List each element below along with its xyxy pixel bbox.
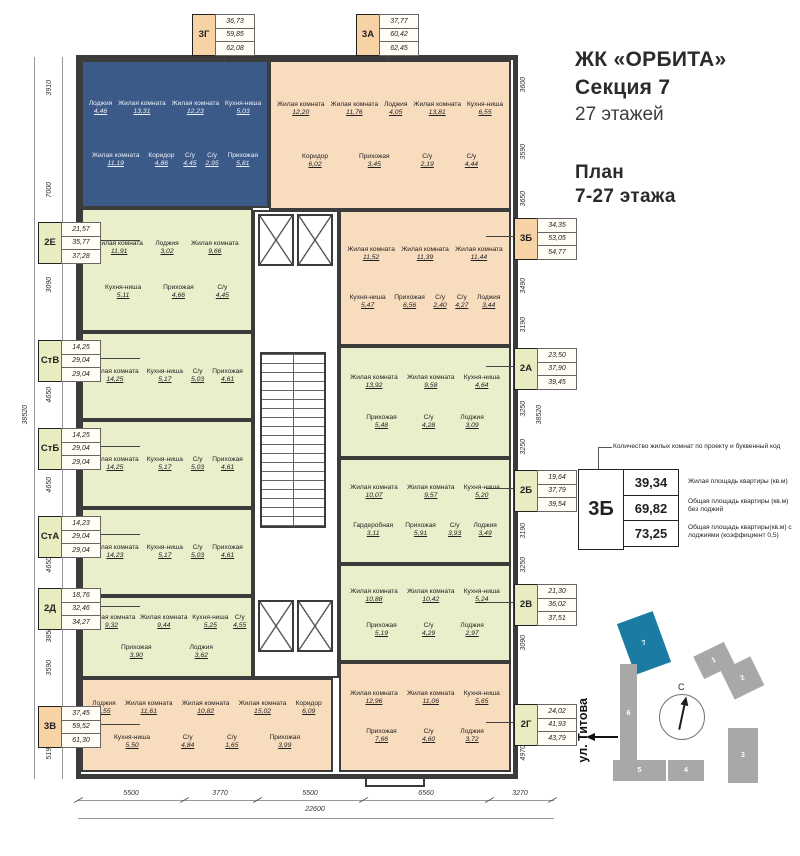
- room-label: С/у: [217, 285, 227, 292]
- dimension-line: [62, 57, 63, 779]
- room: Кухня-ниша4,64: [464, 375, 500, 389]
- room-label: Прихожая: [269, 735, 300, 742]
- tag-2d: 2Д18,7632,4634,27: [38, 588, 101, 630]
- room: Кухня-ниша5,25: [192, 615, 228, 629]
- room-area: 3,09: [465, 422, 478, 429]
- tag-3b: 3Б34,3553,0554,77: [514, 218, 577, 260]
- room-area: 9,66: [208, 248, 221, 255]
- building-number: 7: [641, 639, 647, 647]
- building-number: 5: [638, 767, 642, 774]
- area-total-loggia: 39,45: [537, 375, 577, 390]
- room-label: Коридор: [148, 153, 174, 160]
- room-label: Жилая комната: [118, 101, 166, 108]
- tag-leader: [486, 722, 514, 723]
- room: Кухня-ниша5,17: [147, 369, 183, 383]
- room-area: 4,55: [233, 622, 246, 629]
- area-total-loggia: 37,28: [61, 249, 101, 264]
- dim-left-5: 4650: [46, 557, 53, 573]
- room: С/у3,93: [448, 523, 461, 537]
- room-area: 6,02: [308, 161, 321, 168]
- apartment-code: 3В: [38, 706, 62, 748]
- apartment-3v: Лоджия3,55 Жилая комната11,61 Жилая комн…: [81, 678, 333, 772]
- tag-2v: 2В21,3036,0237,51: [514, 584, 577, 626]
- room: Жилая комната13,31: [118, 101, 166, 115]
- room-label: Лоджия: [460, 415, 483, 422]
- building-core: [253, 210, 339, 678]
- area-living: 18,76: [61, 588, 101, 603]
- room: Лоджия4,05: [384, 102, 407, 116]
- area-total-loggia: 37,51: [537, 611, 577, 626]
- room-area: 11,52: [363, 254, 380, 261]
- room-label: Кухня-ниша: [464, 589, 500, 596]
- area-living: 21,57: [61, 222, 101, 237]
- tag-leader: [486, 488, 514, 489]
- building-number: 3: [741, 752, 745, 759]
- street-label: ул. Титова: [576, 698, 590, 763]
- room-label: Лоджия: [155, 241, 178, 248]
- room-area: 4,61: [221, 376, 234, 383]
- dim-right-7: 3190: [520, 523, 527, 539]
- room-label: Жилая комната: [347, 247, 395, 254]
- area-living: 36,73: [215, 14, 255, 29]
- room: Жилая комната15,02: [239, 701, 287, 715]
- room-area: 4,86: [155, 160, 168, 167]
- apartment-code: СтБ: [38, 428, 62, 470]
- room-area: 4,61: [221, 464, 234, 471]
- apartment-code: 2В: [514, 584, 538, 626]
- room: Жилая комната10,07: [350, 485, 398, 499]
- room-label: Кухня-ниша: [225, 101, 261, 108]
- room-area: 4,60: [422, 736, 435, 743]
- apartment-3g: Лоджия4,46 Жилая комната13,31 Жилая комн…: [81, 60, 269, 208]
- room-label: Прихожая: [366, 623, 397, 630]
- room-label: Лоджия: [384, 102, 407, 109]
- dim-left-7: 3590: [46, 660, 53, 676]
- room-label: С/у: [193, 457, 203, 464]
- area-total-loggia: 29,04: [61, 455, 101, 470]
- room: Прихожая4,61: [212, 545, 243, 559]
- room: Жилая комната10,88: [350, 589, 398, 603]
- tag-leader: [100, 446, 140, 447]
- room: С/у1,65: [225, 735, 238, 749]
- room-label: Лоджия: [460, 729, 483, 736]
- room-area: 13,81: [429, 109, 446, 116]
- room: Кухня-ниша5,47: [350, 295, 386, 309]
- room-area: 9,44: [157, 622, 170, 629]
- area-living: 34,35: [537, 218, 577, 233]
- dim-left-0: 3910: [46, 80, 53, 96]
- legend-desc-total-loggia: Общая площадь квартиры(кв.м) с лоджиями …: [688, 524, 796, 540]
- building-number: 4: [684, 767, 688, 774]
- room-label: Жилая комната: [277, 102, 325, 109]
- dim-bottom-2: 5500: [302, 790, 318, 797]
- room-label: С/у: [185, 153, 195, 160]
- room-area: 5,65: [475, 698, 488, 705]
- dim-left-2: 3090: [46, 277, 53, 293]
- room: Прихожая4,61: [212, 457, 243, 471]
- entrance-porch: [365, 774, 425, 787]
- room-label: С/у: [183, 735, 193, 742]
- room-area: 5,17: [158, 464, 171, 471]
- room-area: 10,88: [365, 596, 382, 603]
- room: Жилая комната11,61: [125, 701, 173, 715]
- tag-leader: [486, 602, 514, 603]
- room-label: Кухня-ниша: [147, 369, 183, 376]
- room: Коридор4,86: [148, 153, 174, 167]
- room-area: 5,47: [361, 302, 374, 309]
- room-area: 12,23: [187, 108, 204, 115]
- north-arrow-icon: [678, 703, 686, 730]
- room-area: 13,92: [365, 382, 382, 389]
- room-area: 5,17: [158, 376, 171, 383]
- area-total-loggia: 39,54: [537, 497, 577, 512]
- room: Лоджия3,72: [460, 729, 483, 743]
- room: Жилая комната10,42: [407, 589, 455, 603]
- room: Кухня-ниша5,65: [464, 691, 500, 705]
- room-label: Кухня-ниша: [147, 457, 183, 464]
- area-total: 35,77: [61, 236, 101, 251]
- legend-desc-living: Жилая площадь квартиры (кв.м): [688, 478, 796, 486]
- area-living: 24,02: [537, 704, 577, 719]
- room-area: 4,64: [475, 382, 488, 389]
- room: Прихожая3,90: [121, 645, 152, 659]
- room-label: Жилая комната: [95, 241, 143, 248]
- room-label: Жилая комната: [407, 589, 455, 596]
- room-area: 9,58: [424, 382, 437, 389]
- site-building-5: 5: [613, 760, 666, 781]
- room: Прихожая5,19: [366, 623, 397, 637]
- room: Кухня-ниша5,17: [147, 545, 183, 559]
- apartment-2g: Жилая комната12,96 Жилая комната11,06 Ку…: [339, 662, 511, 772]
- room: Лоджия3,09: [460, 415, 483, 429]
- room-label: Гардеробная: [353, 523, 393, 530]
- area-total: 59,85: [215, 28, 255, 43]
- room: С/у4,45: [216, 285, 229, 299]
- legend-callout-line: [598, 447, 612, 470]
- apartment-2e: Жилая комната11,91 Лоджия3,02 Жилая комн…: [81, 208, 253, 332]
- room-label: Прихожая: [212, 369, 243, 376]
- room-area: 11,91: [111, 248, 128, 255]
- room: Прихожая5,48: [366, 415, 397, 429]
- room: Жилая комната9,66: [191, 241, 239, 255]
- room-area: 1,65: [225, 742, 238, 749]
- room-label: Кухня-ниша: [464, 375, 500, 382]
- dim-bottom-total: 22600: [305, 806, 324, 813]
- room: С/у4,28: [422, 415, 435, 429]
- room-area: 3,49: [479, 530, 492, 537]
- building-number: 2: [739, 674, 746, 682]
- room-area: 14,25: [106, 376, 123, 383]
- room: Кухня-ниша5,24: [464, 589, 500, 603]
- room-area: 4,44: [465, 161, 478, 168]
- room-label: Жилая комната: [407, 485, 455, 492]
- room: С/у5,03: [191, 369, 204, 383]
- room: Жилая комната12,96: [350, 691, 398, 705]
- apartment-code: 3А: [356, 14, 380, 56]
- room-label: Лоджия: [473, 523, 496, 530]
- compass: С: [659, 694, 705, 740]
- room-label: Жилая комната: [350, 589, 398, 596]
- room-area: 4,61: [221, 552, 234, 559]
- room-label: Жилая комната: [172, 101, 220, 108]
- dim-bottom-4: 3270: [512, 790, 528, 797]
- area-living: 14,25: [61, 340, 101, 355]
- area-total-loggia: 61,30: [61, 733, 101, 748]
- dim-right-3: 3490: [520, 278, 527, 294]
- section-title: Секция 7: [575, 76, 670, 100]
- room-label: Кухня-ниша: [192, 615, 228, 622]
- room-label: Жилая комната: [350, 485, 398, 492]
- room-label: С/у: [435, 295, 445, 302]
- room: Жилая комната13,81: [413, 102, 461, 116]
- room-area: 3,72: [465, 736, 478, 743]
- room-area: 4,05: [389, 109, 402, 116]
- room-label: С/у: [207, 153, 217, 160]
- dim-right-5: 3250: [520, 401, 527, 417]
- room-area: 6,56: [403, 302, 416, 309]
- north-label: С: [678, 682, 685, 692]
- room-label: Прихожая: [405, 523, 436, 530]
- room-label: Лоджия: [190, 645, 213, 652]
- room-label: С/у: [422, 154, 432, 161]
- room-label: Прихожая: [394, 295, 425, 302]
- room-label: С/у: [193, 545, 203, 552]
- room-label: Жилая комната: [239, 701, 287, 708]
- room-area: 11,06: [422, 698, 439, 705]
- site-building-4: 4: [668, 760, 704, 781]
- room: Кухня-ниша6,55: [467, 102, 503, 116]
- apartment-code: СтВ: [38, 340, 62, 382]
- legend-total-loggia-area: 73,25: [623, 520, 679, 547]
- area-total: 53,05: [537, 232, 577, 247]
- dim-right-8: 3250: [520, 557, 527, 573]
- room-area: 11,76: [346, 109, 363, 116]
- room-label: Кухня-ниша: [350, 295, 386, 302]
- room-area: 11,44: [471, 254, 488, 261]
- room-label: Прихожая: [359, 154, 390, 161]
- room: С/у4,29: [422, 623, 435, 637]
- room-label: С/у: [235, 615, 245, 622]
- apartment-code: 2Б: [514, 470, 538, 512]
- room: С/у4,84: [181, 735, 194, 749]
- tag-2a: 2А23,5037,9039,45: [514, 348, 577, 390]
- room-label: Кухня-ниша: [105, 285, 141, 292]
- room-label: Жилая комната: [182, 701, 230, 708]
- room: Кухня-ниша5,17: [147, 457, 183, 471]
- dim-left-4: 4650: [46, 477, 53, 493]
- room-area: 11,19: [107, 160, 124, 167]
- site-building-3: 3: [728, 728, 758, 783]
- area-total: 32,46: [61, 602, 101, 617]
- room: Прихожая7,66: [366, 729, 397, 743]
- room: Лоджия3,62: [190, 645, 213, 659]
- room-area: 5,03: [191, 464, 204, 471]
- room-area: 6,55: [478, 109, 491, 116]
- room-area: 10,07: [365, 492, 382, 499]
- room: Кухня-ниша5,50: [114, 735, 150, 749]
- apartment-code: 2Д: [38, 588, 62, 630]
- room-area: 2,97: [465, 630, 478, 637]
- room: Прихожая5,91: [405, 523, 436, 537]
- apartment-code: 2А: [514, 348, 538, 390]
- room-label: Коридор: [302, 154, 328, 161]
- tag-3v: 3В37,4559,5261,30: [38, 706, 101, 748]
- room: С/у4,45: [183, 153, 196, 167]
- room-label: Жилая комната: [407, 375, 455, 382]
- dim-right-10: 4970: [520, 745, 527, 761]
- legend-callout: Количество жилых комнат по проекту и бук…: [613, 443, 791, 450]
- room-label: Жилая комната: [125, 701, 173, 708]
- room-label: Кухня-ниша: [147, 545, 183, 552]
- area-living: 14,23: [61, 516, 101, 531]
- room-area: 3,62: [195, 652, 208, 659]
- room: Лоджия3,02: [155, 241, 178, 255]
- room: Коридор6,09: [296, 701, 322, 715]
- room-area: 11,61: [140, 708, 157, 715]
- room-area: 2,95: [205, 160, 218, 167]
- room-label: Лоджия: [477, 295, 500, 302]
- room-area: 3,99: [278, 742, 291, 749]
- dim-right-1: 3590: [520, 144, 527, 160]
- floors-count: 27 этажей: [575, 104, 664, 126]
- room: С/у5,03: [191, 457, 204, 471]
- tag-leader: [486, 236, 514, 237]
- room: Жилая комната11,76: [331, 102, 379, 116]
- room-area: 10,82: [197, 708, 214, 715]
- room: С/у4,60: [422, 729, 435, 743]
- room-label: Прихожая: [121, 645, 152, 652]
- room: Кухня-ниша5,03: [225, 101, 261, 115]
- dim-right-0: 3600: [520, 77, 527, 93]
- room-area: 5,48: [375, 422, 388, 429]
- room: С/у2,19: [421, 154, 434, 168]
- room-area: 3,02: [160, 248, 173, 255]
- tag-leader: [486, 366, 514, 367]
- room-area: 4,46: [94, 108, 107, 115]
- area-total: 36,02: [537, 598, 577, 613]
- room: С/у4,55: [233, 615, 246, 629]
- area-living: 14,25: [61, 428, 101, 443]
- legend-code: 3Б: [578, 469, 624, 550]
- room-label: Коридор: [296, 701, 322, 708]
- room-label: Прихожая: [366, 729, 397, 736]
- room: С/у4,44: [465, 154, 478, 168]
- area-total: 41,93: [537, 718, 577, 733]
- room: Лоджия4,46: [89, 101, 112, 115]
- apartment-code: 3Б: [514, 218, 538, 260]
- room-area: 5,50: [125, 742, 138, 749]
- room: Жилая комната13,92: [350, 375, 398, 389]
- dim-left-1: 7000: [46, 182, 53, 198]
- tag-2e: 2Е21,5735,7737,28: [38, 222, 101, 264]
- room-area: 10,42: [422, 596, 439, 603]
- room-area: 5,03: [191, 376, 204, 383]
- dimension-line: [34, 57, 35, 779]
- room-area: 5,19: [375, 630, 388, 637]
- room-area: 5,81: [236, 160, 249, 167]
- area-total: 29,04: [61, 530, 101, 545]
- tag-2b: 2Б19,6437,7939,54: [514, 470, 577, 512]
- plan-label: План: [575, 162, 624, 184]
- area-total-loggia: 62,45: [379, 41, 419, 56]
- room-label: Жилая комната: [401, 247, 449, 254]
- room: Жилая комната9,44: [140, 615, 188, 629]
- room-area: 7,66: [375, 736, 388, 743]
- room: Кухня-ниша5,11: [105, 285, 141, 299]
- room-area: 4,84: [181, 742, 194, 749]
- dim-bottom-1: 3770: [212, 790, 228, 797]
- room-area: 4,66: [172, 292, 185, 299]
- tag-st-a: СтА14,2329,0429,04: [38, 516, 101, 558]
- room: Жилая комната11,44: [455, 247, 503, 261]
- area-total-loggia: 43,79: [537, 731, 577, 746]
- area-total-loggia: 54,77: [537, 245, 577, 260]
- room: Лоджия3,44: [477, 295, 500, 309]
- legend-living-area: 39,34: [623, 469, 679, 496]
- tag-st-b: СтБ14,2529,0429,04: [38, 428, 101, 470]
- room: Прихожая6,56: [394, 295, 425, 309]
- tag-st-v: СтВ14,2529,0429,04: [38, 340, 101, 382]
- area-total-loggia: 62,08: [215, 41, 255, 56]
- room-area: 3,44: [482, 302, 495, 309]
- room-area: 5,11: [117, 292, 130, 299]
- room-area: 4,29: [422, 630, 435, 637]
- room-area: 5,91: [414, 530, 427, 537]
- room-label: С/у: [227, 735, 237, 742]
- room: Жилая комната10,82: [182, 701, 230, 715]
- room-label: Жилая комната: [350, 375, 398, 382]
- dim-bottom-0: 5500: [123, 790, 139, 797]
- complex-title: ЖК «ОРБИТА»: [575, 48, 727, 72]
- room-area: 4,28: [422, 422, 435, 429]
- room-area: 14,25: [106, 464, 123, 471]
- tag-leader: [100, 606, 140, 607]
- dimension-line: [78, 800, 554, 801]
- room-label: Прихожая: [163, 285, 194, 292]
- tag-2g: 2Г24,0241,9343,79: [514, 704, 577, 746]
- area-total: 37,79: [537, 484, 577, 499]
- room-label: С/у: [457, 295, 467, 302]
- room-label: Жилая комната: [140, 615, 188, 622]
- room: Прихожая3,99: [269, 735, 300, 749]
- room-area: 2,40: [433, 302, 446, 309]
- room-area: 3,93: [448, 530, 461, 537]
- room: С/у2,40: [433, 295, 446, 309]
- room: Прихожая4,66: [163, 285, 194, 299]
- room-label: Жилая комната: [413, 102, 461, 109]
- room-area: 11,39: [417, 254, 434, 261]
- area-living: 19,64: [537, 470, 577, 485]
- room: Лоджия3,49: [473, 523, 496, 537]
- apartment-3b: Жилая комната11,52 Жилая комната11,39 Жи…: [339, 210, 511, 346]
- room-label: Жилая комната: [407, 691, 455, 698]
- room-label: Кухня-ниша: [464, 691, 500, 698]
- area-total-loggia: 29,04: [61, 367, 101, 382]
- room-area: 5,25: [204, 622, 217, 629]
- area-living: 23,50: [537, 348, 577, 363]
- room: Жилая комната11,39: [401, 247, 449, 261]
- room: Жилая комната12,23: [172, 101, 220, 115]
- room: С/у5,03: [191, 545, 204, 559]
- room-area: 12,20: [292, 109, 309, 116]
- room-area: 12,96: [365, 698, 382, 705]
- room-label: Прихожая: [212, 545, 243, 552]
- legend-total-area: 69,82: [623, 495, 679, 522]
- apartment-st-a: Жилая комната14,23 Кухня-ниша5,17 С/у5,0…: [81, 508, 253, 596]
- room-area: 2,19: [421, 161, 434, 168]
- building-number: 1: [711, 656, 718, 664]
- apartment-code: 2Г: [514, 704, 538, 746]
